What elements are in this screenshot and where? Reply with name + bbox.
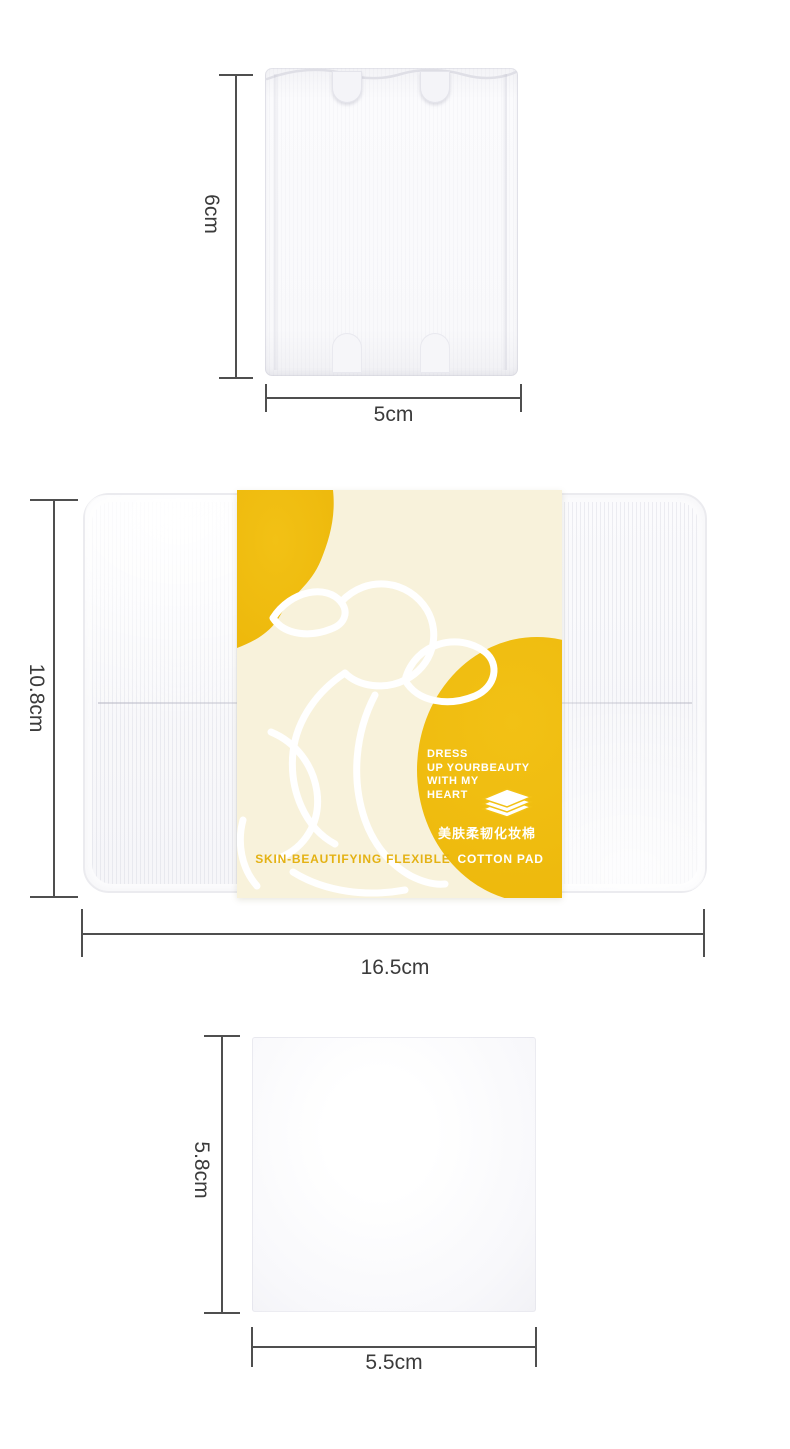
cotton-pad-photo-square xyxy=(252,1037,536,1312)
yellow-blob-icon xyxy=(237,490,334,648)
dim-label-package-height: 10.8cm xyxy=(24,664,48,733)
slogan-line: DRESS xyxy=(427,748,530,762)
pad-tab xyxy=(420,71,450,103)
tagline-white-part: COTTON PAD xyxy=(458,852,544,866)
dim-label-bottom-pad-height: 5.8cm xyxy=(189,1141,213,1198)
dim-line-top-pad-width xyxy=(266,397,521,399)
dim-cap xyxy=(703,909,705,957)
tagline-gold-part: SKIN-BEAUTIFYING FLEXIBLE xyxy=(255,852,450,866)
dim-cap xyxy=(219,74,253,76)
pad-fold-line xyxy=(274,74,279,370)
cotton-pad-stack-icon xyxy=(476,788,534,820)
cotton-pad-photo-rect xyxy=(265,68,518,376)
dim-label-top-pad-width: 5cm xyxy=(266,403,521,427)
dim-line-package-height xyxy=(53,500,55,897)
slogan-line: UP YOURBEAUTY xyxy=(427,762,530,776)
package-paper-band: DRESS UP YOURBEAUTY WITH MY HEART 美肤柔韧化妆… xyxy=(237,490,562,898)
product-size-chart: 6cm 5cm 10.8cm xyxy=(0,0,790,1449)
dim-cap xyxy=(81,909,83,957)
dim-line-top-pad-height xyxy=(235,75,237,378)
dim-label-top-pad-height: 6cm xyxy=(199,194,223,234)
pad-tab xyxy=(420,333,450,373)
dim-label-bottom-pad-width: 5.5cm xyxy=(252,1351,536,1375)
band-tagline: SKIN-BEAUTIFYING FLEXIBLECOTTON PAD xyxy=(237,852,562,866)
dim-line-bottom-pad-height xyxy=(221,1036,223,1313)
dim-cap xyxy=(204,1312,240,1314)
dim-line-bottom-pad-width xyxy=(252,1346,536,1348)
slogan-line: WITH MY xyxy=(427,775,530,789)
dim-cap xyxy=(30,896,78,898)
pad-wavy-edge xyxy=(265,65,518,83)
pad-fold-line xyxy=(502,74,507,370)
band-product-name-cn: 美肤柔韧化妆棉 xyxy=(420,823,554,842)
dim-cap xyxy=(204,1035,240,1037)
dim-cap xyxy=(219,377,253,379)
dim-line-package-width xyxy=(82,933,704,935)
pad-tab xyxy=(332,71,362,103)
dim-label-package-width: 16.5cm xyxy=(83,956,707,980)
dim-cap xyxy=(30,499,78,501)
pad-tab xyxy=(332,333,362,373)
